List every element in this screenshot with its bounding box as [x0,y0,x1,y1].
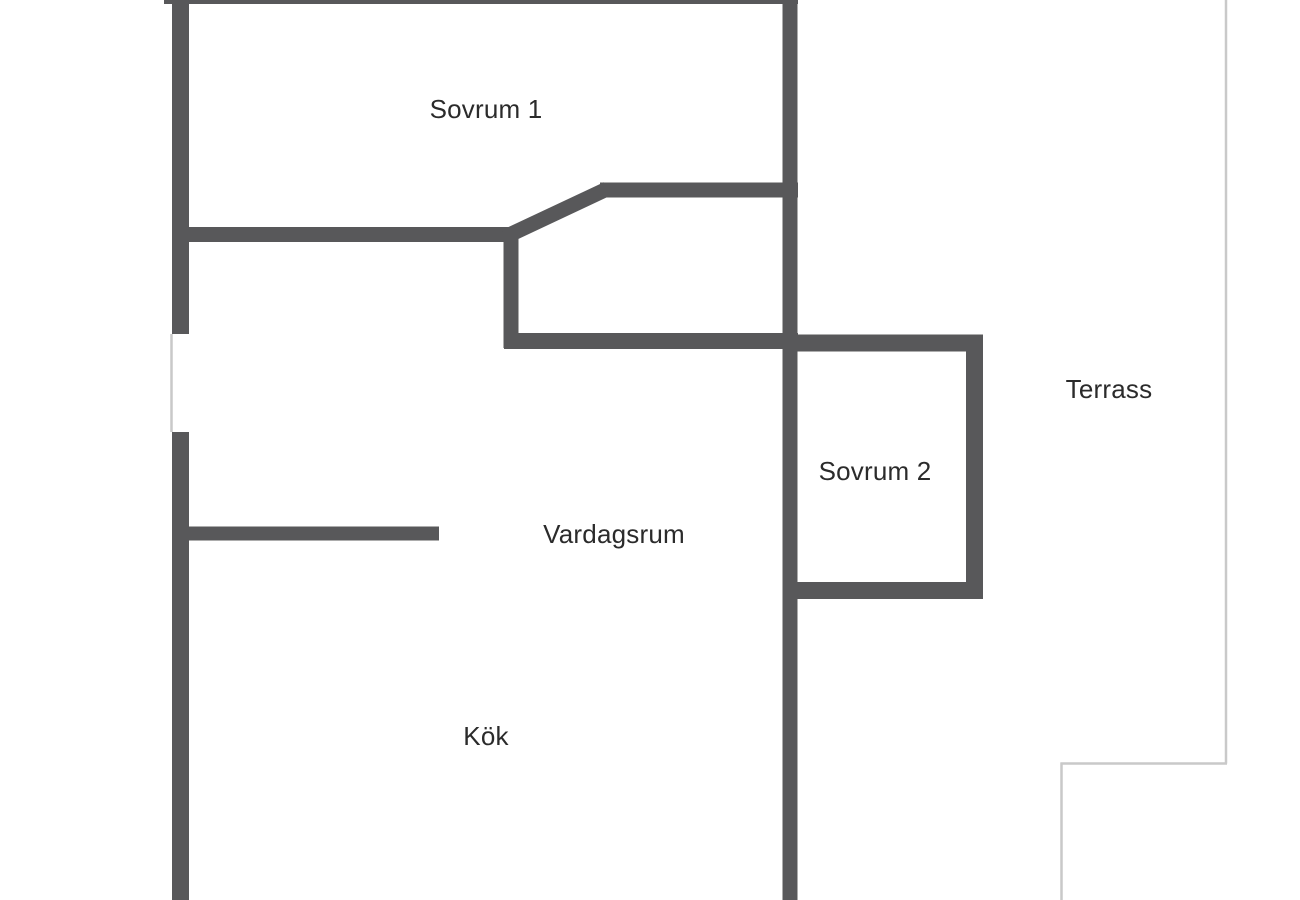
wall-diagonal [505,189,607,237]
light-line-group [172,0,1228,900]
room-label-kok: Kök [463,722,508,752]
room-label-terrass: Terrass [1066,375,1153,405]
room-label-vardagsrum: Vardagsrum [543,520,685,550]
floor-plan-drawing [0,0,1300,900]
wall-group [164,0,983,900]
floor-plan-canvas: Sovrum 1 Sovrum 2 Vardagsrum Kök Terrass [0,0,1300,900]
room-label-sovrum-2: Sovrum 2 [819,457,932,487]
room-label-sovrum-1: Sovrum 1 [430,95,543,125]
